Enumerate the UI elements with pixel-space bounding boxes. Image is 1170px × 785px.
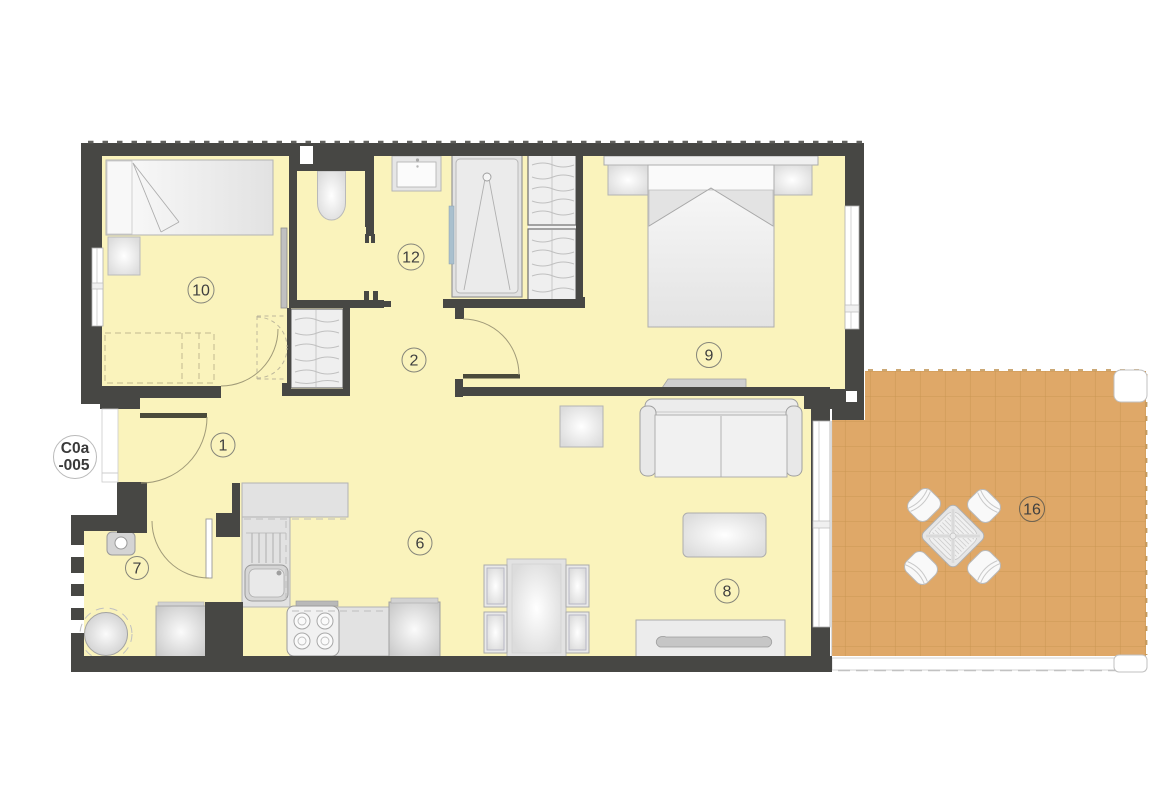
svg-text:16: 16 <box>1023 502 1041 519</box>
svg-text:7: 7 <box>133 561 142 578</box>
svg-text:1: 1 <box>219 438 228 455</box>
svg-text:9: 9 <box>705 348 714 365</box>
svg-text:10: 10 <box>192 283 210 300</box>
svg-text:2: 2 <box>410 353 419 370</box>
svg-text:6: 6 <box>416 536 425 553</box>
svg-text:C0a: C0a <box>61 440 90 457</box>
svg-text:8: 8 <box>723 584 732 601</box>
svg-text:-005: -005 <box>58 457 89 474</box>
svg-text:12: 12 <box>402 250 420 267</box>
